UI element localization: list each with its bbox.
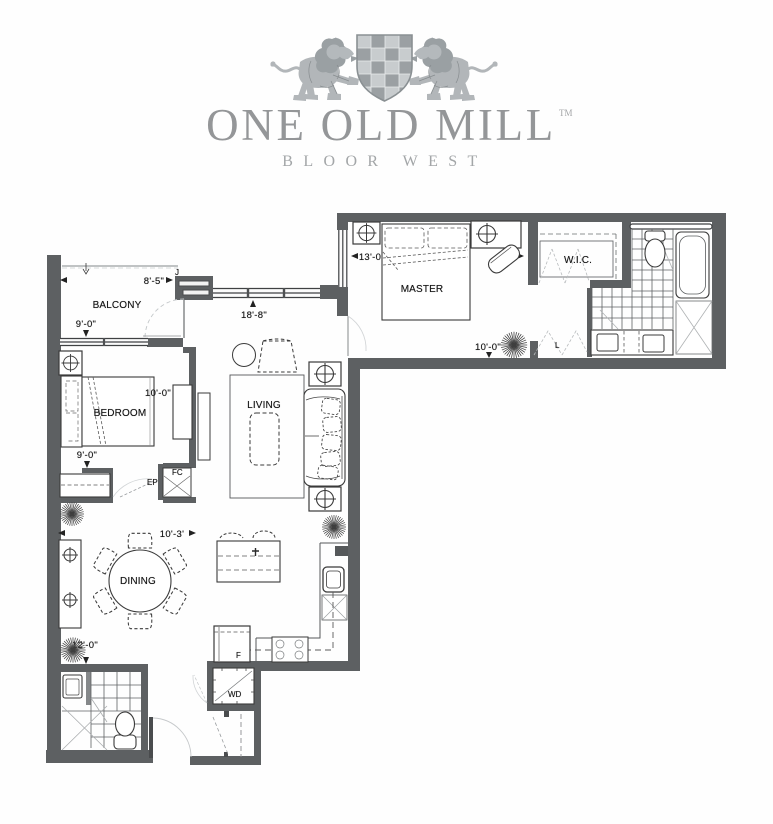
svg-text:13'-0: 13'-0 [359,252,381,263]
svg-text:MASTER: MASTER [401,284,444,295]
svg-text:LIVING: LIVING [247,400,281,411]
svg-text:FC: FC [172,468,183,477]
svg-text:WD: WD [228,690,242,699]
svg-text:10'-3': 10'-3' [160,529,184,540]
svg-text:DINING: DINING [120,576,156,587]
svg-text:BEDROOM: BEDROOM [94,408,147,419]
svg-text:L: L [555,341,560,350]
svg-text:TM: TM [559,108,573,118]
svg-text:F: F [236,651,241,660]
svg-text:J: J [175,268,179,277]
svg-text:EP: EP [147,478,158,487]
svg-text:ONE OLD MILL: ONE OLD MILL [206,100,556,150]
svg-text:18'-8": 18'-8" [241,310,267,321]
svg-text:9'-0": 9'-0" [76,319,96,330]
svg-text:BALCONY: BALCONY [93,300,142,311]
svg-text:8'-5": 8'-5" [144,276,164,287]
svg-text:10'-0": 10'-0" [145,388,171,399]
svg-text:W.I.C.: W.I.C. [564,255,592,266]
svg-text:BLOOR WEST: BLOOR WEST [282,153,487,170]
svg-text:9'-0": 9'-0" [77,450,97,461]
svg-text:10'-0": 10'-0" [475,342,501,353]
